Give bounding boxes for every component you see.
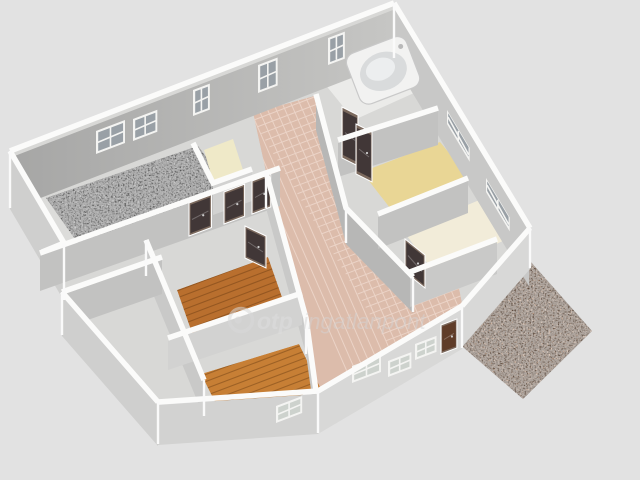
watermark-brand: otp [257, 308, 293, 334]
logo-dot [235, 316, 242, 323]
door-knob [236, 203, 238, 205]
watermark-suffix: ingatlanpont [303, 309, 427, 334]
door-knob [366, 152, 368, 154]
door-knob [257, 246, 259, 248]
floorplan-render: otp ingatlanpont [0, 0, 640, 480]
door-knob [451, 335, 453, 337]
door-knob [202, 214, 204, 216]
floorplan-svg: otp ingatlanpont [0, 0, 640, 480]
watermark: otp ingatlanpont [230, 308, 428, 334]
door-knob [417, 262, 419, 264]
door [441, 319, 457, 354]
